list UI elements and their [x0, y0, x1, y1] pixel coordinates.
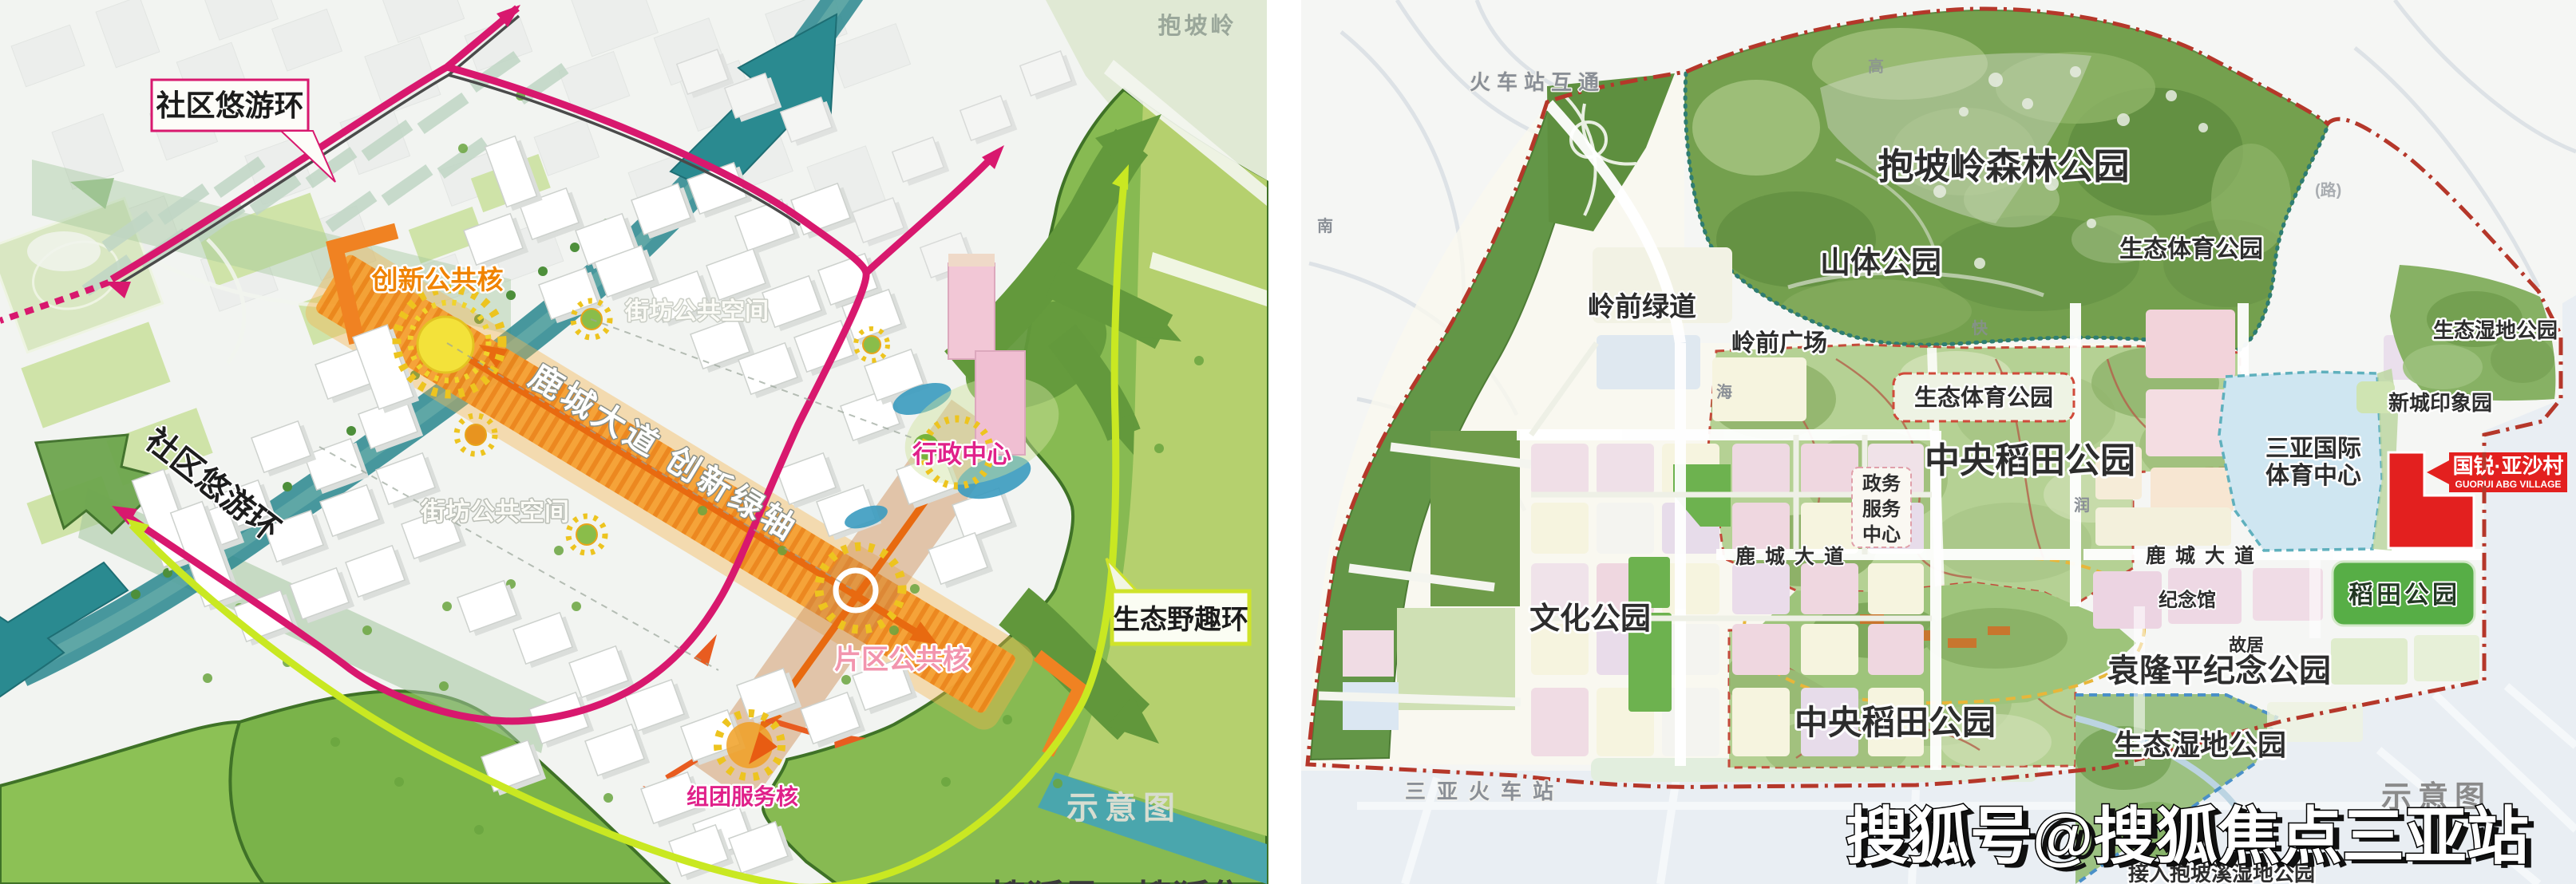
svg-text:抱坡岭森林公园: 抱坡岭森林公园 — [1878, 146, 2129, 187]
svg-text:文化公园: 文化公园 — [1529, 602, 1651, 636]
svg-text:抱坡岭: 抱坡岭 — [1157, 13, 1237, 39]
svg-text:中心: 中心 — [1862, 524, 1901, 546]
svg-text:片区公共核: 片区公共核 — [834, 645, 970, 675]
svg-text:南: 南 — [1317, 217, 1333, 235]
svg-text:生态野趣环: 生态野趣环 — [1113, 605, 1248, 635]
svg-text:岭前绿道: 岭前绿道 — [1588, 292, 1696, 322]
svg-text:行政中心: 行政中心 — [912, 440, 1011, 468]
svg-text:生态湿地公园: 生态湿地公园 — [2114, 728, 2286, 761]
svg-text:示意图: 示意图 — [1066, 791, 1181, 826]
svg-text:鹿城大道: 鹿城大道 — [1735, 545, 1854, 568]
svg-text:(路): (路) — [2315, 180, 2341, 199]
svg-text:生态体育公园: 生态体育公园 — [2119, 235, 2263, 262]
svg-text:袁隆平纪念公园: 袁隆平纪念公园 — [2107, 653, 2331, 689]
svg-text:街坊公共空间: 街坊公共空间 — [420, 498, 569, 526]
svg-text:海: 海 — [1716, 382, 1732, 401]
svg-text:润: 润 — [2074, 495, 2090, 515]
svg-text:街坊公共空间: 街坊公共空间 — [624, 298, 769, 325]
svg-text:纪念馆: 纪念馆 — [2159, 589, 2216, 611]
svg-text:搜狐号@搜狐焦点三亚站: 搜狐号@搜狐焦点三亚站 — [1846, 801, 2529, 871]
svg-text:服务: 服务 — [1862, 498, 1901, 520]
svg-text:新城印象园: 新城印象园 — [2388, 391, 2492, 415]
svg-text:政务: 政务 — [1862, 472, 1901, 495]
svg-text:生态体育公园: 生态体育公园 — [1914, 384, 2053, 411]
svg-text:稻田公园: 稻田公园 — [2348, 581, 2460, 609]
svg-text:岭前广场: 岭前广场 — [1731, 330, 1827, 357]
svg-text:创新公共核: 创新公共核 — [371, 265, 504, 294]
svg-text:中央稻田公园: 中央稻田公园 — [1925, 441, 2135, 480]
svg-text:国锐·亚沙村: 国锐·亚沙村 — [2453, 454, 2564, 478]
svg-text:三亚火车站: 三亚火车站 — [1405, 779, 1565, 803]
svg-text:高: 高 — [1868, 57, 1884, 76]
svg-text:GUORUI ABG VILLAGE: GUORUI ABG VILLAGE — [2455, 479, 2562, 490]
svg-text:故居: 故居 — [2229, 635, 2264, 655]
svg-text:社区悠游环: 社区悠游环 — [156, 89, 304, 122]
svg-text:体育中心: 体育中心 — [2265, 462, 2361, 489]
svg-text:搜狐号@搜狐焦: 搜狐号@搜狐焦 — [990, 878, 1246, 884]
svg-text:中央稻田公园: 中央稻田公园 — [1794, 704, 1996, 741]
svg-text:三亚国际: 三亚国际 — [2265, 436, 2361, 462]
svg-text:山体公园: 山体公园 — [1820, 247, 1941, 280]
svg-text:快: 快 — [1972, 318, 1988, 337]
svg-text:组团服务核: 组团服务核 — [687, 784, 798, 809]
svg-text:火车站互通: 火车站互通 — [1470, 70, 1605, 94]
svg-text:生态湿地公园: 生态湿地公园 — [2433, 318, 2558, 342]
svg-text:鹿城大道: 鹿城大道 — [2146, 544, 2264, 567]
